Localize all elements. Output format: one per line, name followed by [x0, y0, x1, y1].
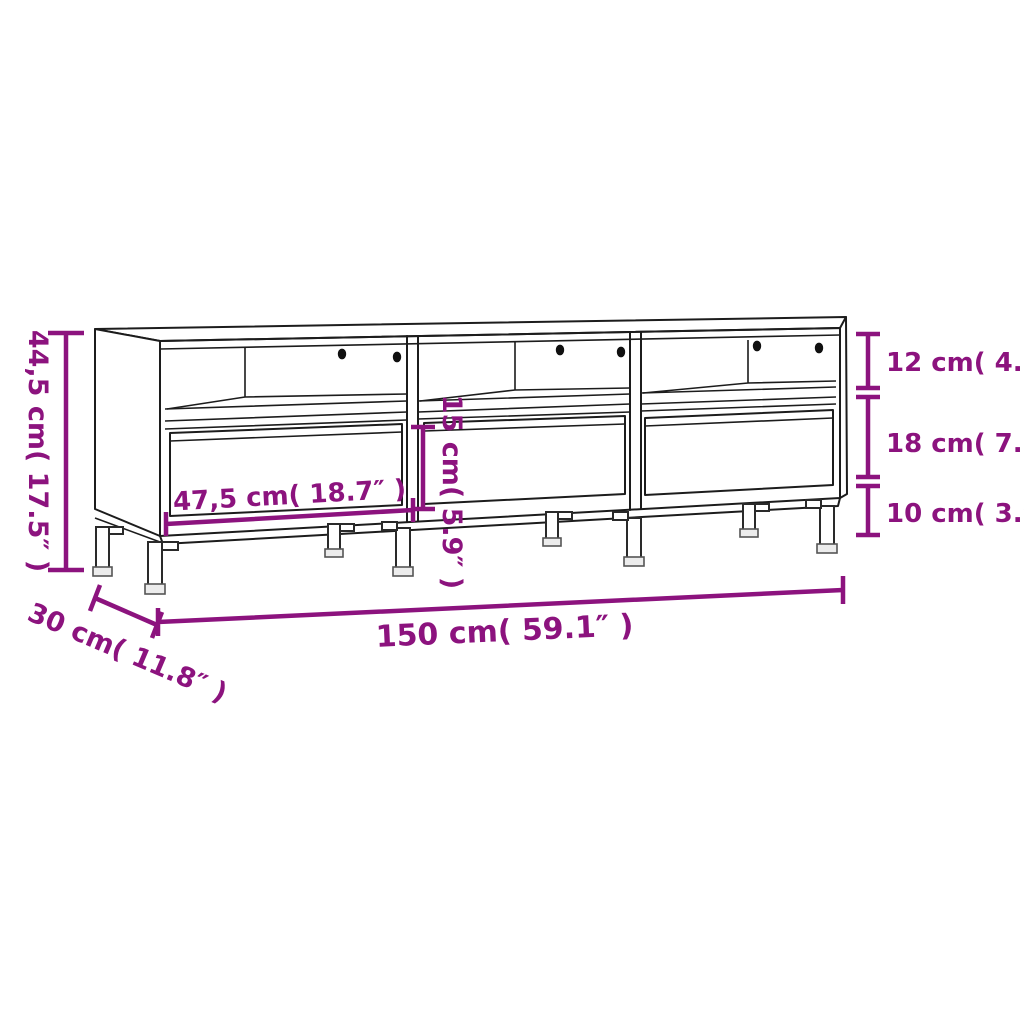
leg-bracket [806, 500, 821, 508]
cable-hole [753, 341, 761, 352]
leg-bracket [755, 504, 769, 511]
leg-back-1 [96, 527, 109, 568]
leg-foot [145, 584, 165, 594]
drawer-section-height-dimension: 18 cm( 7.1″ ) [856, 397, 1024, 477]
leg-back-3 [546, 512, 558, 539]
leg-foot [624, 557, 644, 566]
leg-bracket [382, 522, 397, 530]
leg-back-4 [743, 504, 755, 530]
leg-height-line [856, 486, 880, 535]
overall-height-dimension: 44,5 cm( 17.5″ ) [22, 330, 84, 572]
leg-front-2 [396, 528, 410, 568]
leg-height-label: 10 cm( 3.9″ ) [886, 499, 1024, 529]
product-dimension-diagram: 44,5 cm( 17.5″ ) 12 cm( 4.7″ ) 18 cm( 7.… [0, 0, 1024, 1024]
leg-foot [393, 567, 413, 576]
dimension-annotations: 44,5 cm( 17.5″ ) 12 cm( 4.7″ ) 18 cm( 7.… [22, 330, 1024, 709]
overall-depth-dimension: 30 cm( 11.8″ ) [23, 585, 231, 709]
cable-hole [393, 352, 401, 363]
overall-height-label: 44,5 cm( 17.5″ ) [22, 330, 53, 572]
leg-foot [817, 544, 837, 553]
drawer-section-height-label: 18 cm( 7.1″ ) [886, 429, 1024, 459]
leg-back-2 [328, 524, 340, 550]
leg-front-3 [627, 518, 641, 558]
cable-hole [556, 345, 564, 356]
right-side-edge [840, 317, 847, 498]
diagram-canvas: 44,5 cm( 17.5″ ) 12 cm( 4.7″ ) 18 cm( 7.… [0, 0, 1024, 1024]
leg-front-4 [820, 506, 834, 545]
leg-foot [93, 567, 112, 576]
leg-bracket [558, 512, 572, 519]
leg-bracket [340, 524, 354, 531]
cable-hole [617, 347, 625, 358]
left-side-panel [95, 329, 160, 536]
compartment-height-line [856, 334, 880, 388]
cable-hole [338, 349, 346, 360]
leg-front-1 [148, 542, 162, 585]
leg-foot [543, 538, 561, 546]
drawer-front-height-label: 15 cm( 5.9″ ) [436, 395, 467, 589]
leg-bracket [162, 542, 178, 550]
overall-width-label: 150 cm( 59.1″ ) [375, 608, 634, 655]
leg-height-dimension: 10 cm( 3.9″ ) [856, 486, 1024, 535]
compartment-height-label: 12 cm( 4.7″ ) [886, 348, 1024, 378]
leg-bracket [613, 512, 628, 520]
compartment-height-dimension: 12 cm( 4.7″ ) [856, 334, 1024, 388]
overall-width-dimension: 150 cm( 59.1″ ) [158, 576, 843, 655]
drawer-section-height-line [856, 397, 880, 477]
leg-foot [740, 529, 758, 537]
leg-foot [325, 549, 343, 557]
drawer-front-height-dimension: 15 cm( 5.9″ ) [411, 395, 467, 589]
cable-hole [815, 343, 823, 354]
leg-bracket [109, 527, 123, 534]
cabinet-drawing [93, 317, 847, 594]
